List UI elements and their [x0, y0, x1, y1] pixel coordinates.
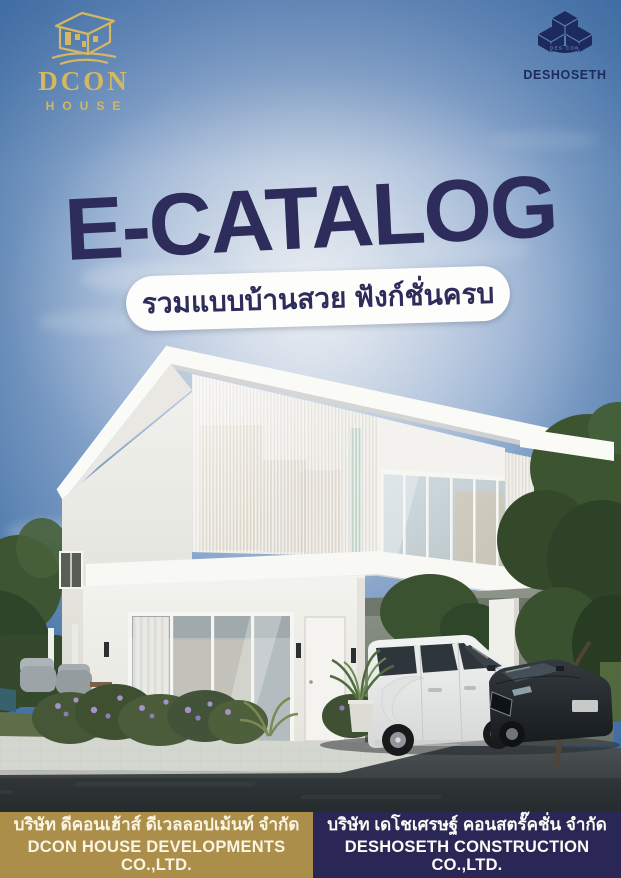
footer-dcon-block: บริษัท ดีคอนเฮ้าส์ ดีเวลลอปเม้นท์ จำกัด …: [0, 812, 313, 878]
subtitle-text: รวมแบบบ้านสวย ฟังก์ชั่นครบ: [141, 271, 495, 325]
dcon-logo-sub: HOUSE: [40, 100, 129, 112]
isometric-cubes-icon: DES CON: [536, 10, 594, 66]
footer-deshoseth-block: บริษัท เดโชเศรษฐ์ คอนสตรั๊คชั่น จำกัด DE…: [313, 812, 621, 878]
dcon-house-logo: DCON HOUSE: [24, 8, 144, 112]
footer-dcon-english: DCON HOUSE DEVELOPMENTS CO.,LTD.: [0, 838, 313, 874]
house-line-art-with-swoosh-icon: [48, 8, 120, 66]
pool: [0, 688, 16, 712]
subtitle-pill: รวมแบบบ้านสวย ฟังก์ชั่นครบ: [125, 265, 510, 331]
deshoseth-logo: DES CON DESHOSETH: [519, 10, 611, 82]
deshoseth-logo-arc-text: DES CON: [550, 46, 580, 51]
footer-deshoseth-english: DESHOSETH CONSTRUCTION CO.,LTD.: [313, 838, 621, 874]
cover-photo-illustration: [0, 0, 621, 812]
footer-deshoseth-thai: บริษัท เดโชเศรษฐ์ คอนสตรั๊คชั่น จำกัด: [327, 816, 606, 835]
deshoseth-logo-wordmark: DESHOSETH: [523, 69, 606, 82]
dcon-logo-wordmark: DCON: [38, 68, 130, 95]
footer: บริษัท ดีคอนเฮ้าส์ ดีเวลลอปเม้นท์ จำกัด …: [0, 812, 621, 878]
ecatalog-cover: DCON HOUSE DES CON DESHOSETH E-CATALOG ร…: [0, 0, 621, 878]
footer-dcon-thai: บริษัท ดีคอนเฮ้าส์ ดีเวลลอปเม้นท์ จำกัด: [14, 816, 300, 835]
